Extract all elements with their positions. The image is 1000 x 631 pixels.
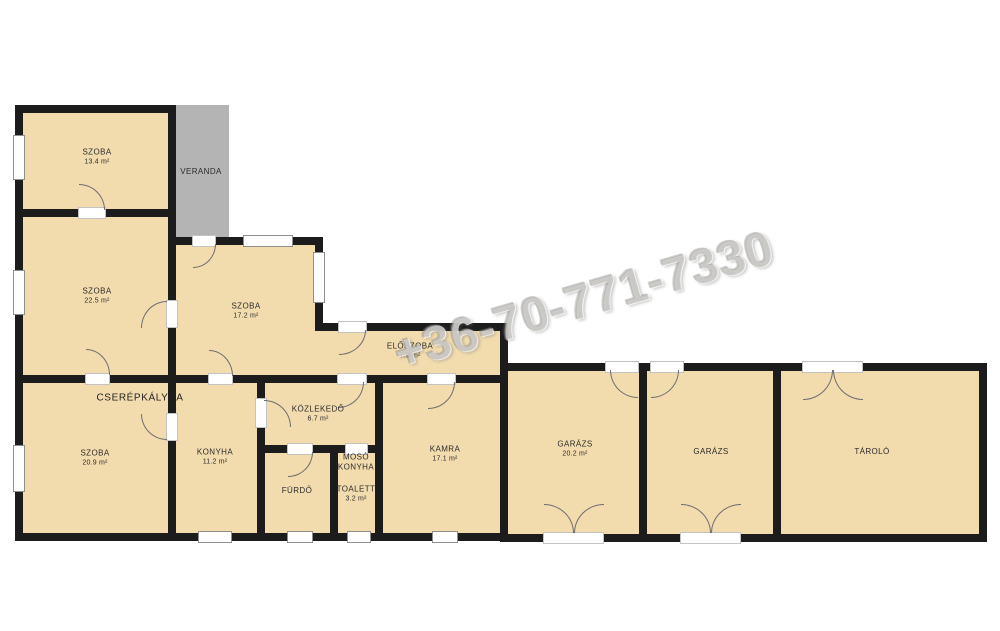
window <box>287 531 313 543</box>
room-label-garazs-2: GARÁZS <box>693 447 728 457</box>
wall <box>500 323 508 542</box>
watermark-phone-number: +36-70-771-7330 <box>388 224 779 379</box>
tile-stove-label: CSERÉPKÁLYHA <box>96 393 183 404</box>
window <box>198 531 232 543</box>
door-opening <box>166 300 178 328</box>
window <box>313 252 325 303</box>
wall <box>639 363 647 542</box>
room-label-szoba-17: SZOBA17.2 m² <box>231 301 260 320</box>
window <box>13 270 25 315</box>
room-label-szoba-13: SZOBA13.4 m² <box>82 147 111 166</box>
wall <box>375 375 383 541</box>
window <box>347 531 371 543</box>
wall <box>168 105 176 383</box>
room-label-szoba-20: SZOBA20.9 m² <box>80 448 109 467</box>
window <box>243 235 293 247</box>
room-label-kamra: KAMRA17.1 m² <box>430 444 460 463</box>
room-label-kozlekedo: KÖZLEKEDŐ6.7 m² <box>292 404 345 423</box>
window <box>13 445 25 492</box>
window <box>432 531 458 543</box>
garage-door-opening <box>680 532 741 544</box>
room-label-veranda: VERANDA <box>180 167 221 177</box>
room-label-furdo: FÜRDŐ <box>282 486 312 496</box>
room-label-szoba-22: SZOBA22.5 m² <box>82 286 111 305</box>
wall <box>979 363 987 542</box>
door-opening <box>166 413 178 441</box>
room-label-garazs-1: GARÁZS20.2 m² <box>557 439 592 458</box>
room-label-konyha: KONYHA11.2 m² <box>197 447 233 466</box>
room-label-toalett: TOALETT3.2 m² <box>337 484 376 503</box>
floor-plan-canvas: SZOBA13.4 m²VERANDASZOBA22.5 m²SZOBA17.2… <box>0 0 1000 631</box>
wall <box>773 363 781 542</box>
room-label-moso-konyha: MOSÓ KONYHA <box>338 453 374 474</box>
room-label-tarolo: TÁROLÓ <box>854 447 889 457</box>
garage-door-opening <box>543 532 604 544</box>
wall <box>15 105 176 113</box>
wall <box>500 363 987 371</box>
window <box>13 135 25 180</box>
